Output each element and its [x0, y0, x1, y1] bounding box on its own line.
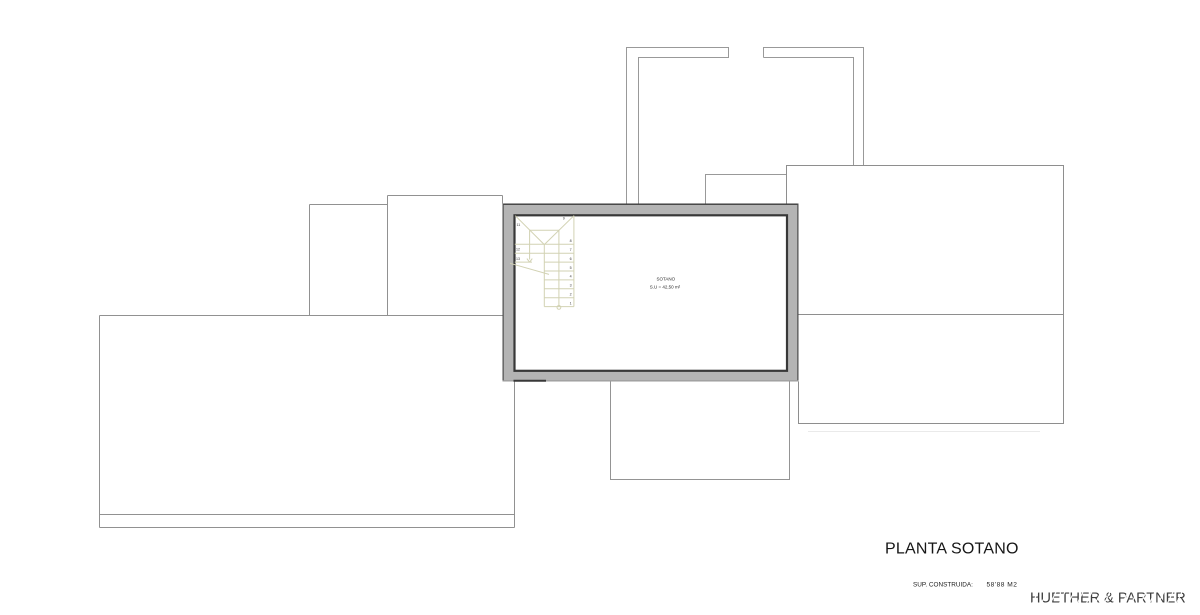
svg-text:2: 2: [570, 293, 572, 297]
svg-text:58'88 M2: 58'88 M2: [987, 582, 1018, 589]
svg-text:5: 5: [570, 266, 572, 270]
svg-text:6: 6: [570, 257, 572, 261]
svg-text:SOTANO: SOTANO: [656, 277, 675, 282]
svg-text:1: 1: [570, 301, 572, 305]
svg-text:8: 8: [570, 239, 572, 243]
svg-text:11: 11: [517, 223, 521, 227]
svg-text:3: 3: [570, 284, 572, 288]
svg-text:PLANTA SOTANO: PLANTA SOTANO: [885, 541, 1019, 558]
svg-text:SUP. CONSTRUIDA:: SUP. CONSTRUIDA:: [913, 582, 973, 589]
svg-text:7: 7: [570, 248, 572, 252]
svg-text:HUETHER & PARTNER: HUETHER & PARTNER: [1030, 591, 1186, 607]
svg-text:12: 12: [516, 248, 520, 252]
svg-text:13: 13: [516, 257, 520, 261]
svg-text:4: 4: [570, 275, 572, 279]
svg-text:9: 9: [563, 217, 565, 221]
svg-text:S.U = 42,50 m²: S.U = 42,50 m²: [650, 285, 681, 290]
